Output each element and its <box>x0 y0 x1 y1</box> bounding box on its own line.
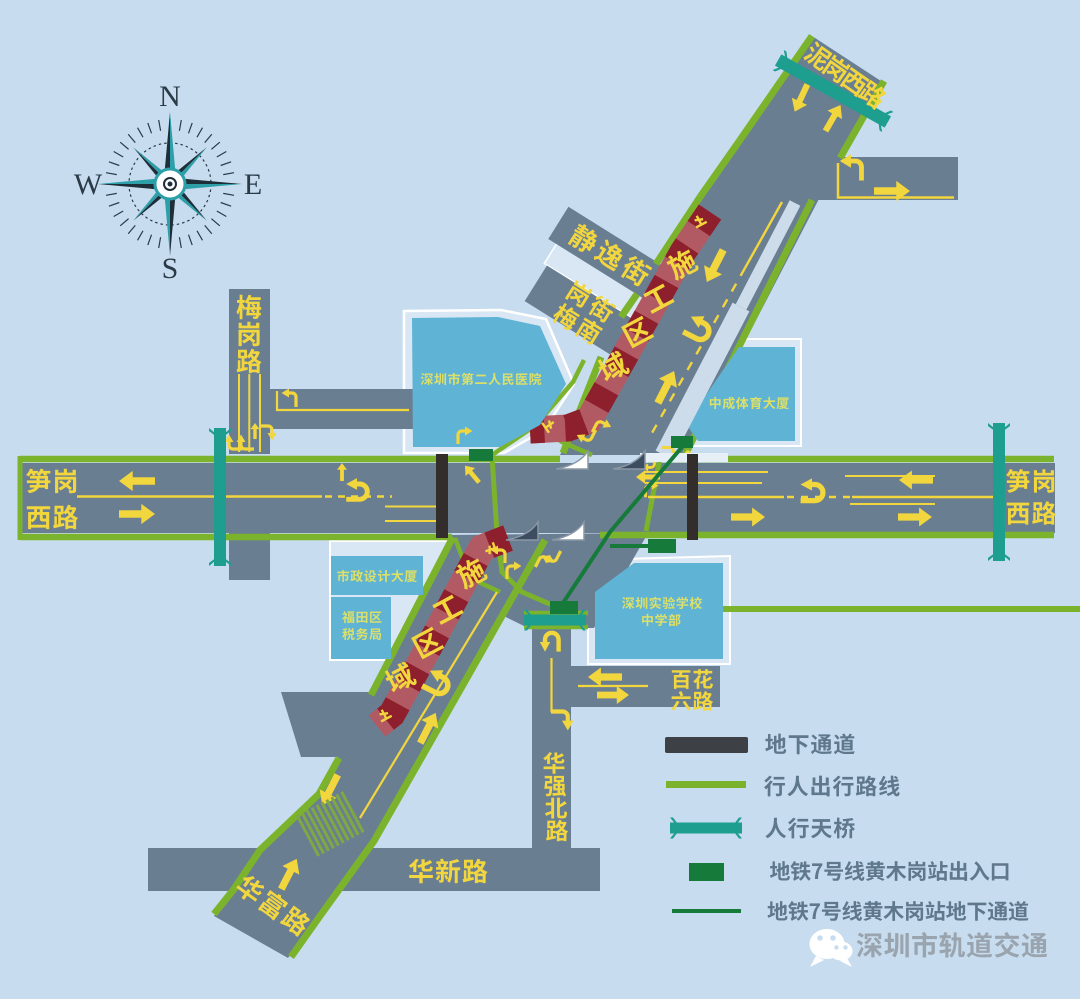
svg-text:N: N <box>159 80 181 113</box>
svg-text:S: S <box>162 252 179 285</box>
svg-text:W: W <box>74 168 103 201</box>
svg-text:E: E <box>244 168 262 201</box>
